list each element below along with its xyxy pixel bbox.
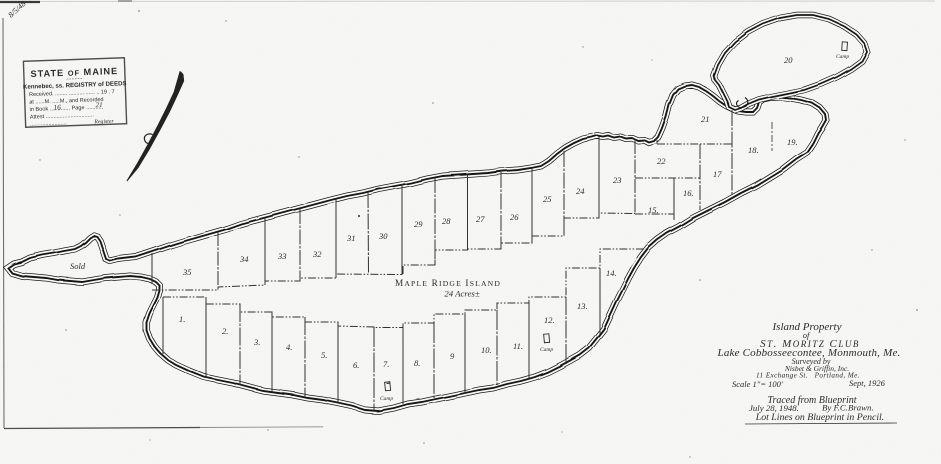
svg-text:8.: 8. (414, 358, 420, 368)
svg-text:Camp: Camp (836, 54, 849, 60)
svg-text:30: 30 (378, 231, 388, 241)
svg-text:Lot Lines on Blueprint in Penc: Lot Lines on Blueprint in Pencil. (755, 412, 884, 423)
svg-text:19.: 19. (787, 137, 798, 147)
svg-text:10.: 10. (481, 345, 492, 355)
svg-text:By F.C.Brawn.: By F.C.Brawn. (822, 403, 874, 413)
svg-text:MAPLE RIDGE ISLAND: MAPLE RIDGE ISLAND (395, 278, 501, 288)
svg-text:32: 32 (312, 249, 322, 259)
svg-text:2.: 2. (222, 326, 228, 336)
svg-text:24: 24 (576, 186, 585, 196)
svg-text:29: 29 (414, 219, 423, 229)
svg-text:35: 35 (182, 267, 192, 277)
svg-text:20: 20 (784, 55, 793, 65)
svg-text:7.: 7. (383, 359, 389, 369)
svg-text:26: 26 (510, 212, 519, 222)
svg-text:Register: Register (93, 119, 114, 126)
svg-text:3.: 3. (253, 337, 260, 347)
svg-text:4.: 4. (286, 342, 292, 352)
svg-text:13.: 13. (577, 301, 588, 311)
svg-text:21: 21 (701, 114, 710, 124)
svg-text:15.: 15. (648, 205, 659, 215)
svg-text:22: 22 (657, 156, 666, 166)
svg-text:Camp: Camp (540, 347, 553, 353)
svg-text:17: 17 (713, 169, 722, 179)
svg-text:Sept, 1926: Sept, 1926 (849, 378, 886, 388)
svg-text:6.: 6. (353, 360, 359, 370)
svg-text:1.: 1. (179, 314, 185, 324)
svg-text:27: 27 (476, 214, 485, 224)
svg-text:23: 23 (613, 175, 622, 185)
svg-text:16.: 16. (683, 188, 694, 198)
svg-text:11.: 11. (513, 341, 523, 351)
svg-text:Camp: Camp (380, 396, 393, 402)
svg-text:Scale 1″= 100′: Scale 1″= 100′ (732, 379, 783, 389)
svg-text:28: 28 (442, 216, 451, 226)
svg-text:21: 21 (95, 101, 102, 109)
svg-text:14.: 14. (606, 268, 617, 278)
svg-text:18.: 18. (748, 145, 759, 155)
svg-text:Sold: Sold (70, 261, 86, 271)
svg-text:25: 25 (543, 194, 552, 204)
svg-text:31: 31 (346, 233, 356, 243)
svg-text:5.: 5. (321, 350, 327, 360)
svg-text:34: 34 (239, 254, 249, 264)
svg-text:12.: 12. (544, 315, 555, 325)
svg-text:33: 33 (277, 251, 287, 261)
svg-text:24 Acres±: 24 Acres± (444, 289, 480, 299)
svg-text:16: 16 (53, 103, 61, 111)
